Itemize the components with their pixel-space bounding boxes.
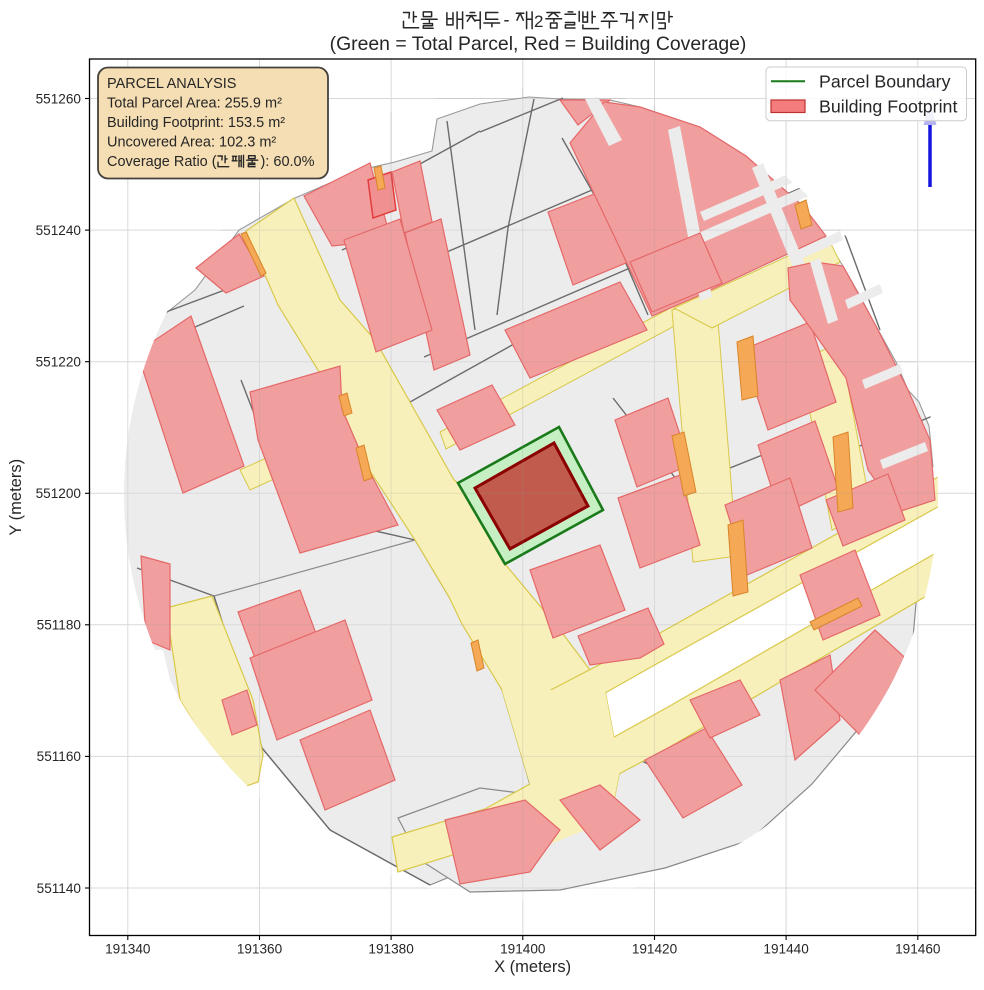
svg-text:551260: 551260 <box>36 91 82 106</box>
svg-text:191440: 191440 <box>763 941 809 956</box>
svg-text:PARCEL ANALYSIS: PARCEL ANALYSIS <box>107 76 236 92</box>
svg-text:Parcel Boundary: Parcel Boundary <box>819 72 951 92</box>
svg-text:X (meters): X (meters) <box>494 958 571 976</box>
svg-text:551200: 551200 <box>36 486 82 501</box>
svg-text:Building Footprint: Building Footprint <box>819 97 957 117</box>
svg-text:191460: 191460 <box>895 941 941 956</box>
svg-text:): 60.0%: ): 60.0% <box>261 154 315 170</box>
svg-text:191360: 191360 <box>237 941 283 956</box>
svg-text:191340: 191340 <box>105 941 151 956</box>
svg-text:551140: 551140 <box>37 881 82 896</box>
svg-text:Y (meters): Y (meters) <box>7 459 25 536</box>
svg-text:Coverage Ratio (: Coverage Ratio ( <box>107 154 217 170</box>
svg-text:551220: 551220 <box>36 355 82 370</box>
svg-text:191400: 191400 <box>500 941 546 956</box>
svg-text:191380: 191380 <box>368 941 414 956</box>
svg-text:Building Footprint: 153.5 m²: Building Footprint: 153.5 m² <box>107 115 285 131</box>
svg-text:551180: 551180 <box>37 618 82 633</box>
svg-text:(Green = Total Parcel, Red = B: (Green = Total Parcel, Red = Building Co… <box>330 33 747 55</box>
svg-text:2: 2 <box>534 12 543 31</box>
svg-text:Total Parcel Area: 255.9 m²: Total Parcel Area: 255.9 m² <box>107 96 282 112</box>
svg-text:191420: 191420 <box>632 941 678 956</box>
svg-text:-: - <box>504 10 510 30</box>
svg-text:551160: 551160 <box>37 749 82 764</box>
svg-text:Uncovered Area: 102.3 m²: Uncovered Area: 102.3 m² <box>107 135 276 151</box>
svg-text:551240: 551240 <box>36 223 82 238</box>
